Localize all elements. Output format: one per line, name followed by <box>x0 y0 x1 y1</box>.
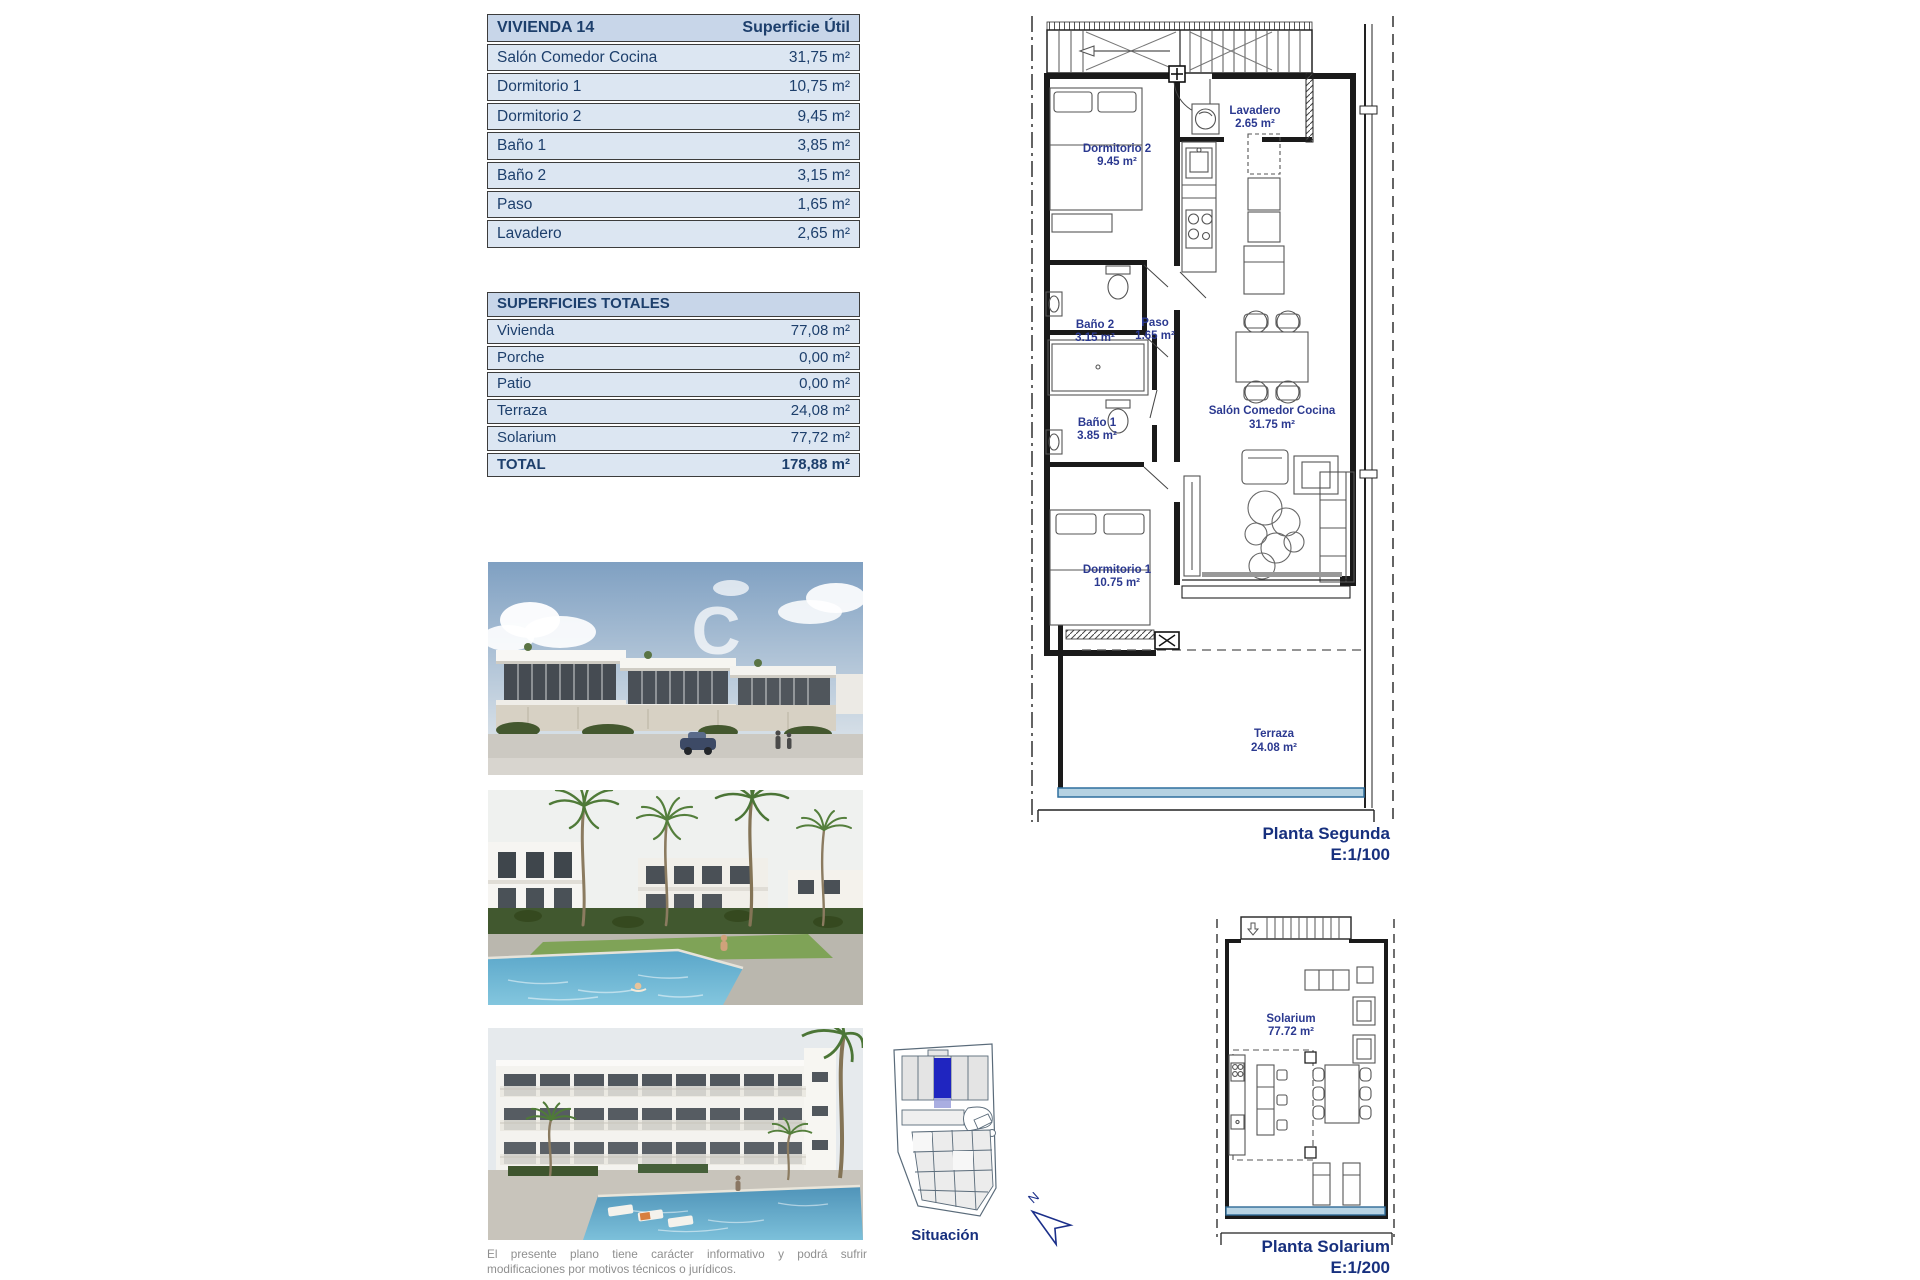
hedge <box>488 908 863 934</box>
unit-table-rows: Salón Comedor Cocina 31,75 m² Dormitorio… <box>487 44 860 248</box>
table-row: Baño 1 3,85 m² <box>487 132 860 159</box>
room-area-value: 31,75 m² <box>789 48 850 67</box>
room-label: Baño 2 <box>497 166 546 185</box>
caption-scale-1-200: E:1/200 <box>1200 1257 1390 1278</box>
developer-watermark: C <box>691 593 740 669</box>
table-row: Porche 0,00 m² <box>487 346 860 371</box>
room-label: Lavadero <box>497 224 562 243</box>
plot-band-top <box>902 1050 988 1108</box>
x-marker <box>1155 632 1179 649</box>
room-area-value: 9,45 m² <box>797 107 850 126</box>
disclaimer-text: El presente plano tiene carácter informa… <box>487 1247 867 1278</box>
planter-hedge <box>508 1166 598 1176</box>
room-label: Baño 1 <box>497 136 546 155</box>
plant <box>1245 491 1304 579</box>
unit-table-title: VIVIENDA 14 <box>497 18 594 38</box>
label-bano2: Baño 2 <box>1076 319 1114 331</box>
table-row: Paso 1,65 m² <box>487 191 860 218</box>
label-dormitorio2: Dormitorio 2 <box>1083 143 1151 155</box>
total-label: Terraza <box>497 402 547 421</box>
room-label: Salón Comedor Cocina <box>497 48 657 67</box>
label-dormitorio1: Dormitorio 1 <box>1083 564 1152 576</box>
totals-table-rows: Vivienda 77,08 m² Porche 0,00 m² Patio 0… <box>487 319 860 451</box>
bar-island <box>1257 1065 1274 1135</box>
grand-total-label: TOTAL <box>497 456 546 475</box>
washing-machine <box>1192 104 1219 134</box>
label-lavadero: Lavadero <box>1229 105 1280 117</box>
wardrobe <box>1184 476 1200 576</box>
planta-solarium-floorplan: Solarium 77.72 m² <box>1213 915 1398 1250</box>
total-label: Solarium <box>497 429 556 448</box>
table-row: Solarium 77,72 m² <box>487 426 860 451</box>
disclaimer-line2: modificaciones por motivos técnicos o ju… <box>487 1262 736 1276</box>
table-row: Patio 0,00 m² <box>487 372 860 397</box>
lower-hatched-wall <box>1066 630 1154 639</box>
area-dormitorio1: 10.75 m² <box>1094 577 1140 589</box>
room-area-value: 3,15 m² <box>797 166 850 185</box>
furniture <box>1046 88 1354 625</box>
kitchen-counter <box>1182 142 1216 272</box>
caption-planta-segunda: Planta Segunda <box>1200 823 1390 844</box>
boundary-bottom-ticks <box>1038 810 1374 822</box>
apartment-building <box>496 1048 836 1170</box>
toilet-bath2 <box>1106 266 1130 299</box>
label-paso: Paso <box>1141 317 1169 329</box>
planter-hedge-2 <box>638 1164 708 1173</box>
unit-table-header: VIVIENDA 14 Superficie Útil <box>487 14 860 42</box>
table-row: Salón Comedor Cocina 31,75 m² <box>487 44 860 71</box>
table-row: Dormitorio 1 10,75 m² <box>487 73 860 100</box>
room-label: Paso <box>497 195 532 214</box>
area-solarium: 77.72 m² <box>1268 1026 1314 1038</box>
table-row: Terraza 24,08 m² <box>487 399 860 424</box>
label-salon: Salón Comedor Cocina <box>1209 405 1336 417</box>
render-photo-apartment-block <box>488 1028 863 1240</box>
dining-set <box>1313 1065 1371 1123</box>
insulated-wall <box>1306 73 1313 142</box>
people-silhouettes <box>735 1175 740 1191</box>
planta-segunda-floorplan: Lavadero 2.65 m² Dormitorio 2 9.45 m² Ba… <box>1022 10 1402 825</box>
disclaimer-line1: El presente plano tiene carácter informa… <box>487 1247 867 1262</box>
table-row: Dormitorio 2 9,45 m² <box>487 103 860 130</box>
north-arrow-shape <box>1032 1206 1073 1247</box>
outdoor-kitchen <box>1229 1055 1287 1155</box>
totals-table-title: SUPERFICIES TOTALES <box>497 295 670 314</box>
room-label: Dormitorio 1 <box>497 77 581 96</box>
photo3-illustration <box>488 1028 863 1240</box>
area-paso: 1.65 m² <box>1135 330 1175 342</box>
glass-railing <box>1058 788 1364 797</box>
dining-table-set <box>1236 311 1308 403</box>
room-labels: Solarium 77.72 m² <box>1266 1013 1315 1038</box>
planta-solarium-caption: Planta Solarium E:1/200 <box>1200 1236 1390 1279</box>
label-terraza: Terraza <box>1254 728 1295 740</box>
north-arrow-icon: N <box>1025 1192 1075 1250</box>
caption-planta-solarium: Planta Solarium <box>1200 1236 1390 1257</box>
photo1-illustration: C <box>488 562 863 775</box>
situacion-caption: Situación <box>880 1227 1010 1244</box>
label-solarium: Solarium <box>1266 1013 1315 1025</box>
area-lavadero: 2.65 m² <box>1235 118 1275 130</box>
planta-segunda-caption: Planta Segunda E:1/100 <box>1200 823 1390 866</box>
total-value: 0,00 m² <box>799 375 850 394</box>
shower-bath1 <box>1048 340 1148 395</box>
room-area-value: 2,65 m² <box>797 224 850 243</box>
terrace-sliding-door <box>1182 572 1350 598</box>
table-row: Baño 2 3,15 m² <box>487 162 860 189</box>
total-value: 0,00 m² <box>799 349 850 368</box>
solarium-stairs <box>1241 917 1351 939</box>
render-photo-terraced-houses: C <box>488 562 863 775</box>
total-value: 77,72 m² <box>791 429 850 448</box>
grand-total-row: TOTAL 178,88 m² <box>487 453 860 478</box>
room-label: Dormitorio 2 <box>497 107 581 126</box>
room-area-value: 3,85 m² <box>797 136 850 155</box>
area-bano2: 3.15 m² <box>1075 332 1115 344</box>
area-salon: 31.75 m² <box>1249 419 1295 431</box>
highlighted-plot <box>934 1058 951 1098</box>
caption-scale-1-100: E:1/100 <box>1200 844 1390 865</box>
glass-railing <box>1226 1207 1385 1215</box>
area-dormitorio2: 9.45 m² <box>1097 156 1137 168</box>
total-label: Vivienda <box>497 322 554 341</box>
kitchen-island <box>1244 134 1284 294</box>
table-row: Vivienda 77,08 m² <box>487 319 860 344</box>
situacion-site-map <box>888 1040 1008 1225</box>
label-bano1: Baño 1 <box>1078 417 1117 429</box>
totals-table: SUPERFICIES TOTALES Vivienda 77,08 m² Po… <box>487 292 860 477</box>
sitting-person <box>721 935 728 951</box>
area-terraza: 24.08 m² <box>1251 742 1297 754</box>
total-value: 77,08 m² <box>791 322 850 341</box>
unit-table-header-right: Superficie Útil <box>742 18 850 38</box>
street-strip <box>902 1110 964 1125</box>
room-area-value: 1,65 m² <box>797 195 850 214</box>
total-label: Porche <box>497 349 545 368</box>
unit-areas-table: VIVIENDA 14 Superficie Útil Salón Comedo… <box>487 14 860 248</box>
road <box>488 758 863 775</box>
total-value: 24,08 m² <box>791 402 850 421</box>
floorplan-brochure-page: VIVIENDA 14 Superficie Útil Salón Comedo… <box>0 0 1920 1280</box>
area-bano1: 3.85 m² <box>1077 430 1117 442</box>
plot-grid-lower <box>912 1130 993 1210</box>
entry-plus-marker <box>1169 66 1185 82</box>
totals-table-header: SUPERFICIES TOTALES <box>487 292 860 317</box>
render-photo-pool-garden <box>488 790 863 1005</box>
photo2-illustration <box>488 790 863 1005</box>
room-area-value: 10,75 m² <box>789 77 850 96</box>
armchair <box>1242 450 1288 484</box>
table-row: Lavadero 2,65 m² <box>487 220 860 247</box>
north-label: N <box>1025 1192 1042 1206</box>
grand-total-value: 178,88 m² <box>782 456 850 475</box>
sun-loungers <box>1313 1163 1360 1205</box>
side-table <box>1294 456 1338 494</box>
total-label: Patio <box>497 375 531 394</box>
